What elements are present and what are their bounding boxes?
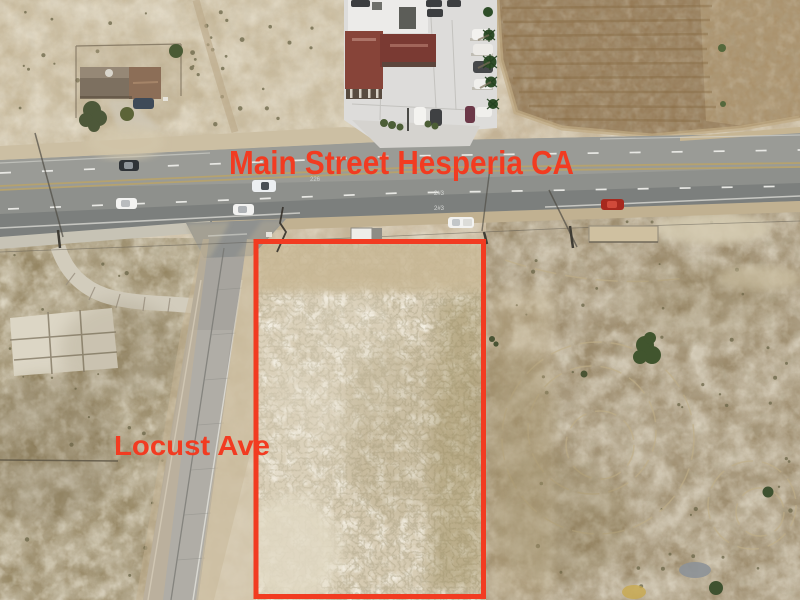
svg-text:2#3: 2#3 xyxy=(434,206,445,212)
svg-text:Main Street Hesperia CA: Main Street Hesperia CA xyxy=(229,144,574,181)
svg-text:2#3: 2#3 xyxy=(434,191,445,197)
svg-text:Locust Ave: Locust Ave xyxy=(114,430,270,461)
